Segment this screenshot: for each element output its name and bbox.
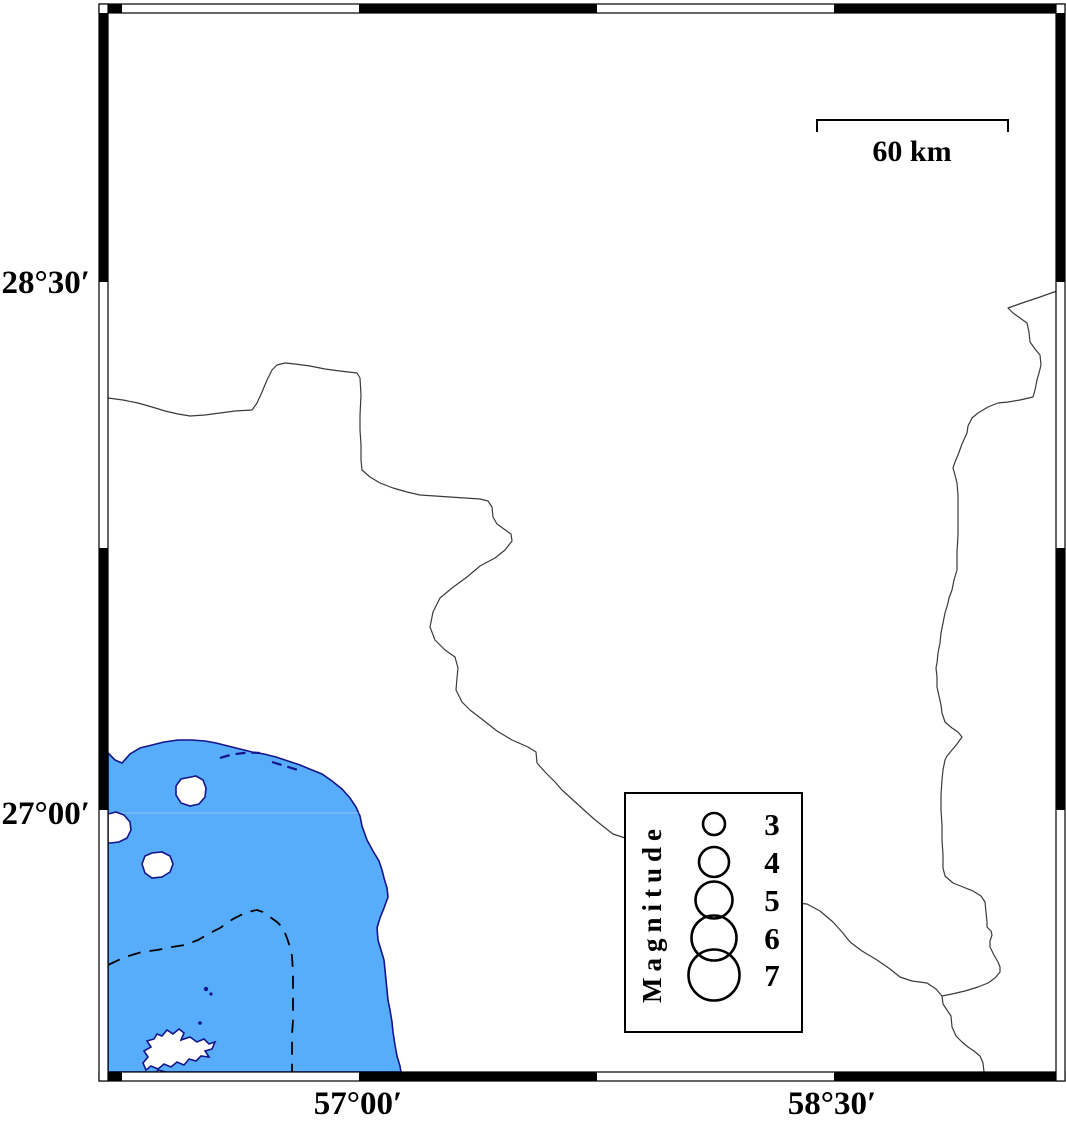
legend-value-m4: 4 [764,845,780,880]
longitude-label-58-30: 58°30′ [788,1086,876,1122]
frame-tick-segment [100,548,108,810]
island [176,776,206,806]
frame-tick-segment [108,5,122,13]
legend-title: Magnitude [637,823,667,1003]
frame-tick-segment [359,1073,597,1081]
frame-tick-segment [100,13,108,282]
magnitude-legend: Magnitude 3 4 5 6 7 [625,793,802,1032]
longitude-label-57-00: 57°00′ [314,1086,402,1122]
scale-bar-label: 60 km [872,135,951,168]
legend-value-m5: 5 [764,883,780,918]
scale-bar-bracket [817,120,1008,132]
legend-value-m3: 3 [764,807,780,842]
legend-value-m7: 7 [764,958,780,993]
frame-tick-segment [834,5,1056,13]
islet-dot [209,992,212,995]
frame-tick-segment [834,1073,1056,1081]
admin-boundary-east [936,291,1057,996]
islet-dot [204,987,208,991]
frame-tick-segment [359,5,597,13]
latitude-label-28-30: 28°30′ [2,265,90,301]
frame-tick-segment [108,1073,122,1081]
islet-dot [198,1021,202,1025]
sea-layer [108,740,401,1077]
scale-bar: 60 km [817,120,1008,168]
frame-tick-segment [1057,548,1065,810]
sea-polygon [108,740,401,1072]
latitude-label-27-00: 27°00′ [2,796,90,832]
legend-value-m6: 6 [764,921,780,956]
frame-tick-segment [1057,13,1065,282]
map-canvas: Magnitude 3 4 5 6 7 60 km [0,0,1066,1122]
